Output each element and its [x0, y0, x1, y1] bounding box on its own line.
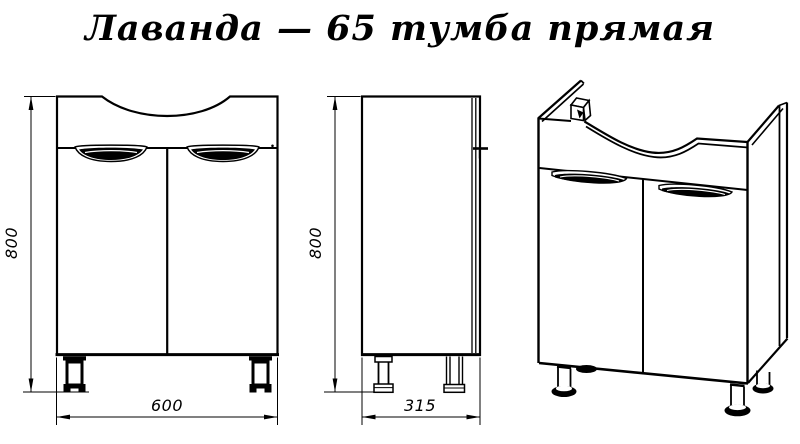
persp-sink-curve-outer: [585, 122, 748, 153]
front-width-label: 600: [151, 396, 183, 415]
front-right-door-handle: [187, 145, 259, 161]
front-right-leg: [249, 356, 272, 392]
arrowhead-up: [333, 97, 338, 111]
side-rear-leg: [444, 357, 465, 393]
leg-foot-top: [756, 383, 770, 388]
leg-top-flange: [375, 357, 392, 363]
drawing-sheet: Лаванда — 65 тумба прямая: [0, 0, 800, 444]
front-view: 800 600: [2, 97, 279, 426]
arrowhead-left: [362, 415, 376, 420]
leg-foot: [64, 384, 86, 393]
arrowhead-left: [57, 415, 71, 420]
leg-top-line: [730, 385, 745, 387]
front-width-dimension: 600: [57, 358, 278, 426]
side-height-label: 800: [306, 227, 325, 259]
persp-rear-left-foot: [576, 365, 597, 373]
persp-front-left-leg: [552, 367, 577, 398]
side-view: 800 315: [306, 97, 488, 426]
arrowhead-right: [467, 415, 481, 420]
arrowhead-down: [333, 379, 338, 393]
leg-foot-top: [556, 386, 572, 392]
front-left-door-handle: [75, 145, 147, 161]
side-cabinet-outline: [362, 97, 480, 357]
side-height-dimension: 800: [306, 97, 374, 393]
leg-top-line: [557, 367, 571, 369]
arrowhead-down: [29, 379, 34, 393]
persp-front-right-leg: [725, 385, 751, 417]
leg-shaft: [253, 362, 268, 385]
leg-foot: [576, 365, 597, 373]
front-height-label: 800: [2, 227, 21, 259]
side-front-leg: [374, 357, 393, 393]
persp-mounting-bracket: [571, 98, 591, 121]
leg-foot-top: [729, 405, 746, 411]
arrowhead-up: [29, 97, 34, 111]
perspective-view: [538, 81, 788, 417]
leg-foot: [374, 384, 393, 392]
persp-right-panel-top-outer: [748, 106, 780, 143]
front-height-dimension: 800: [2, 97, 89, 393]
technical-drawing-svg: 800 600: [0, 0, 800, 444]
arrowhead-right: [264, 415, 278, 420]
front-left-leg: [63, 356, 86, 392]
leg-foot: [250, 384, 272, 393]
persp-right-panel-top-inner: [752, 103, 787, 146]
persp-right-door-handle: [659, 184, 732, 197]
leg-shaft: [67, 362, 82, 385]
front-hinge-dot: [271, 145, 274, 148]
side-depth-label: 315: [404, 396, 436, 415]
persp-left-door-handle: [552, 171, 627, 184]
leg-shaft: [379, 362, 389, 384]
leg-shaft: [447, 357, 463, 385]
persp-right-bottom-edge: [748, 339, 788, 384]
